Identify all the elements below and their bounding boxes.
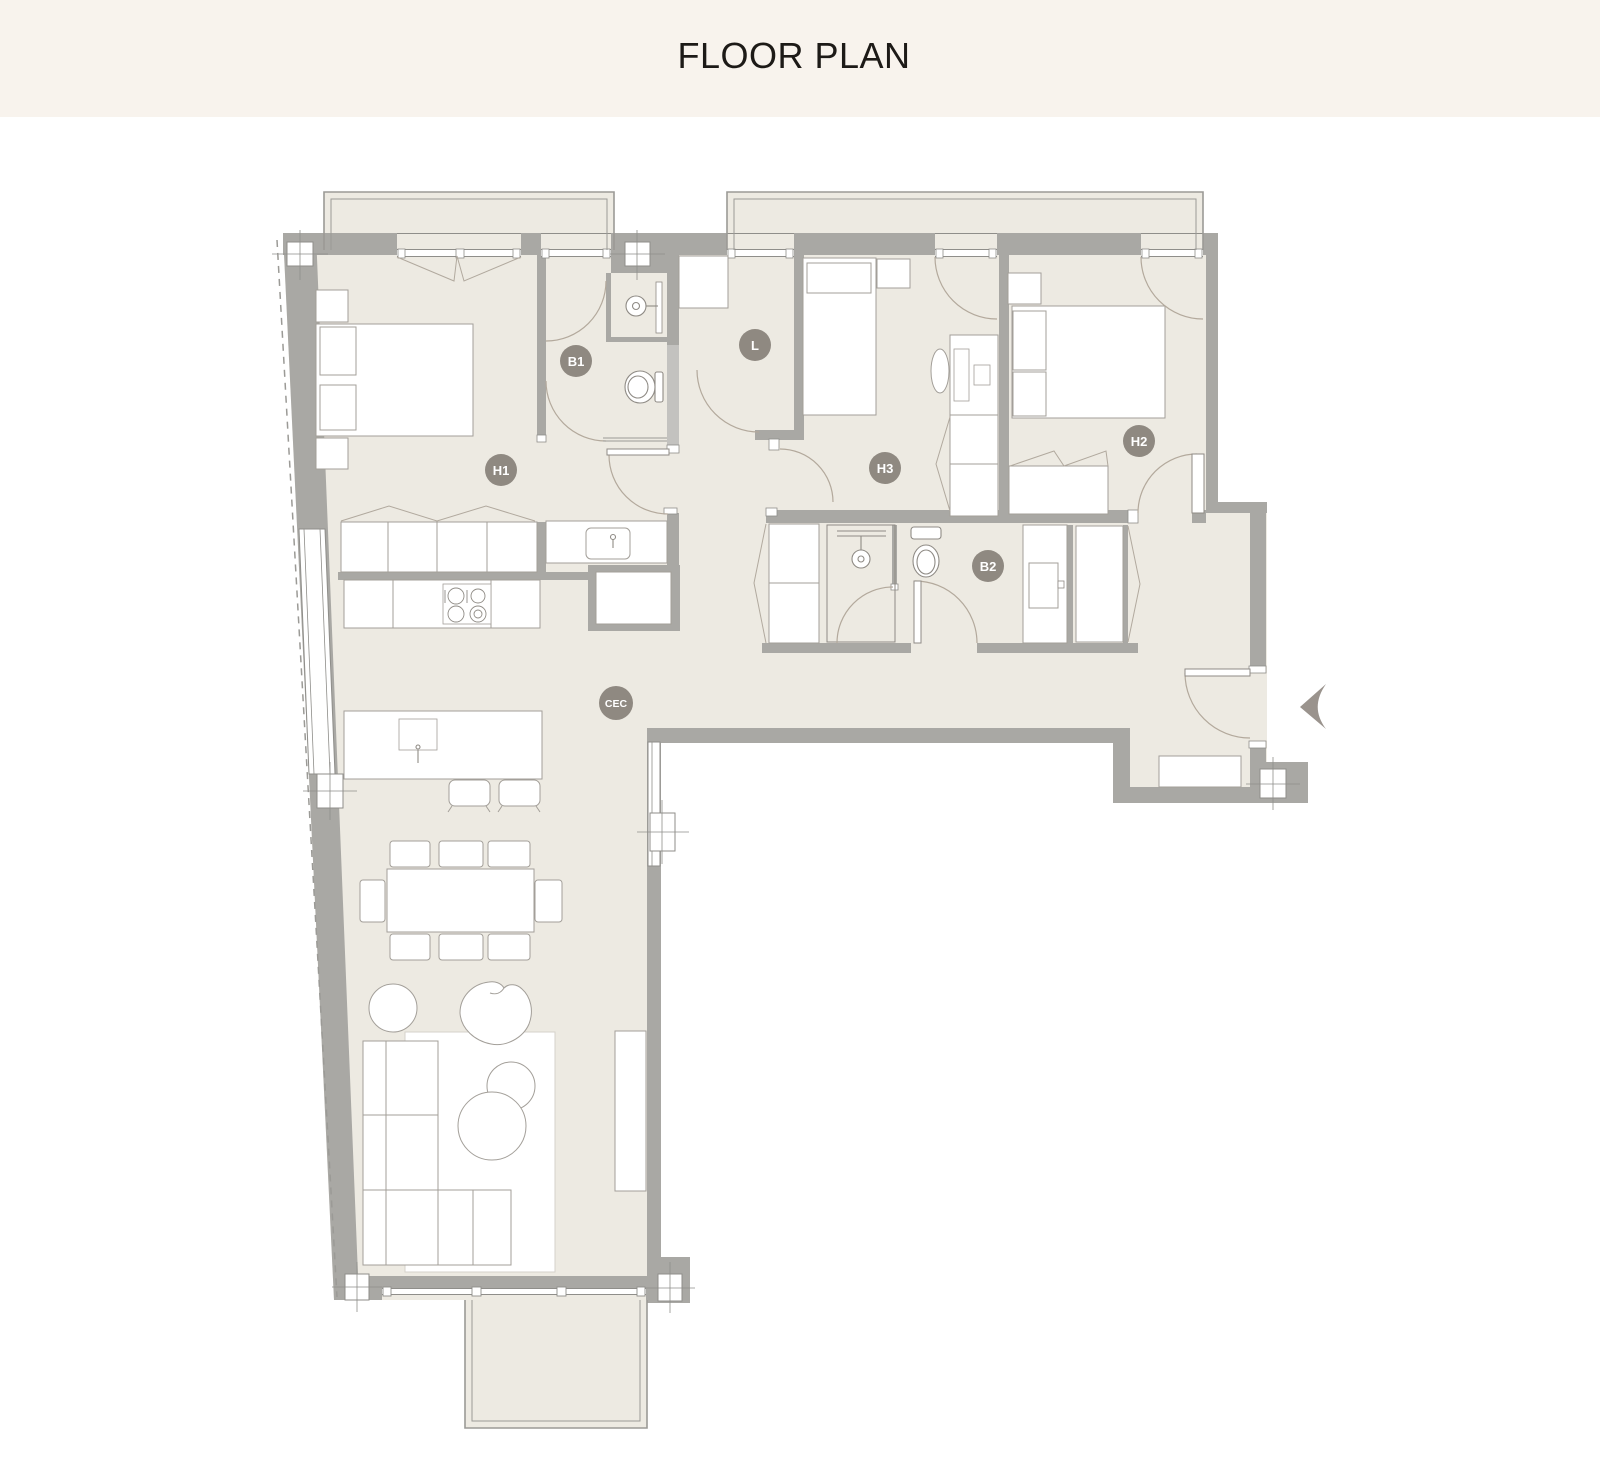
svg-text:H3: H3 (877, 461, 894, 476)
svg-text:B1: B1 (568, 354, 585, 369)
svg-text:H1: H1 (493, 463, 510, 478)
svg-text:CEC: CEC (605, 698, 628, 710)
svg-text:B2: B2 (980, 559, 997, 574)
svg-text:FLOOR PLAN: FLOOR PLAN (677, 35, 910, 76)
svg-text:L: L (751, 338, 759, 353)
svg-text:H2: H2 (1131, 434, 1148, 449)
